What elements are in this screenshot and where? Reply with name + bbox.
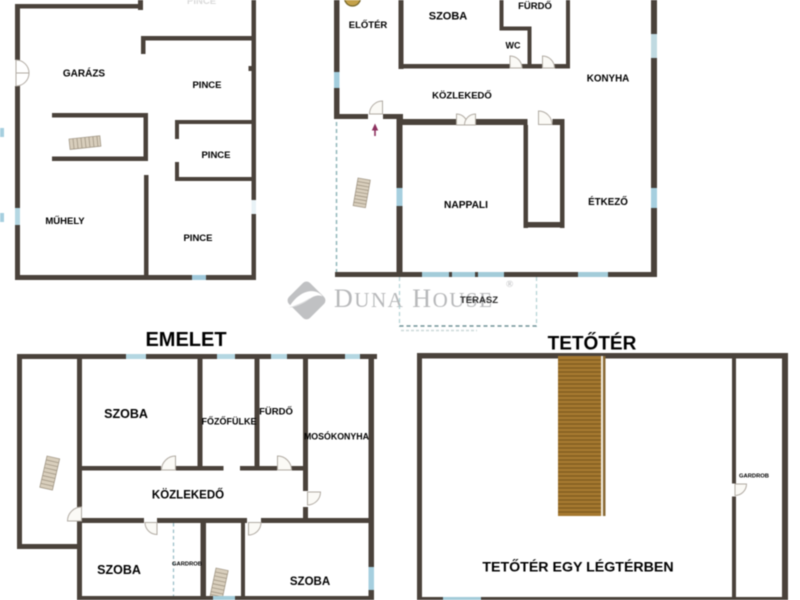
svg-text:GARÁZS: GARÁZS [63, 67, 106, 80]
svg-text:SZOBA: SZOBA [104, 407, 148, 421]
svg-text:TETŐTÉR: TETŐTÉR [548, 333, 637, 355]
svg-text:SZOBA: SZOBA [429, 11, 468, 23]
svg-text:GARDROB: GARDROB [172, 562, 202, 568]
svg-text:PINCE: PINCE [183, 233, 212, 244]
svg-text:®: ® [506, 279, 513, 290]
svg-text:PINCE: PINCE [192, 80, 221, 91]
svg-text:ÉTKEZŐ: ÉTKEZŐ [588, 196, 628, 208]
svg-text:WC: WC [506, 41, 521, 51]
svg-text:GARDROB: GARDROB [739, 474, 769, 480]
svg-text:MŰHELY: MŰHELY [45, 215, 85, 227]
svg-text:SZOBA: SZOBA [97, 563, 141, 577]
svg-text:TETŐTÉR EGY LÉGTÉRBEN: TETŐTÉR EGY LÉGTÉRBEN [482, 558, 673, 576]
svg-text:NAPPALI: NAPPALI [444, 200, 488, 211]
svg-text:MOSÓKONYHA: MOSÓKONYHA [304, 431, 370, 442]
svg-text:KÖZLEKEDŐ: KÖZLEKEDŐ [432, 90, 492, 102]
svg-text:PINCE: PINCE [187, 0, 216, 7]
svg-text:KÖZLEKEDŐ: KÖZLEKEDŐ [152, 489, 224, 502]
svg-text:EMELET: EMELET [145, 329, 226, 351]
svg-text:ELŐTÉR: ELŐTÉR [349, 19, 388, 31]
svg-text:FÜRDŐ: FÜRDŐ [259, 406, 293, 418]
svg-text:KONYHA: KONYHA [587, 74, 629, 85]
svg-text:FŐZŐFÜLKE: FŐZŐFÜLKE [202, 416, 257, 427]
svg-text:PINCE: PINCE [201, 150, 230, 161]
svg-text:FÜRDŐ: FÜRDŐ [518, 0, 552, 12]
svg-text:TERASZ: TERASZ [460, 295, 498, 306]
svg-text:SZOBA: SZOBA [290, 576, 330, 588]
